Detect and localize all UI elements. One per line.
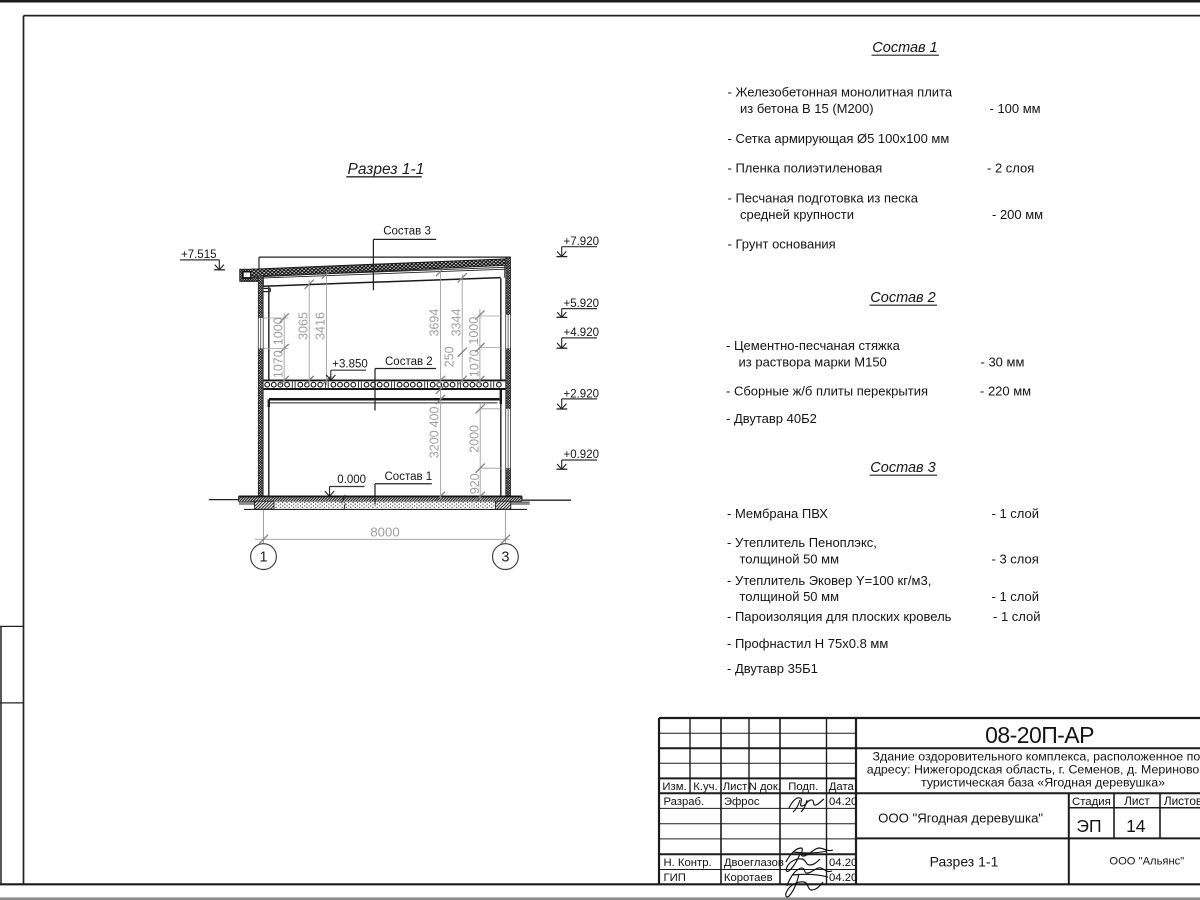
svg-text:из бетона В 15 (М200): из бетона В 15 (М200) (740, 101, 874, 116)
svg-text:ООО "Альянс": ООО "Альянс" (1109, 856, 1184, 868)
svg-text:Листов: Листов (1164, 794, 1200, 808)
svg-text:- Мембрана ПВХ: - Мембрана ПВХ (727, 506, 828, 521)
svg-text:3694: 3694 (427, 309, 441, 337)
svg-text:- Грунт основания: - Грунт основания (728, 237, 836, 252)
svg-text:Дата: Дата (829, 781, 855, 793)
svg-text:3416: 3416 (314, 312, 328, 340)
svg-text:ООО "Ягодная деревушка": ООО "Ягодная деревушка" (878, 811, 1043, 826)
svg-text:08-20П-АР: 08-20П-АР (985, 722, 1094, 748)
svg-text:N док.: N док. (749, 781, 781, 793)
svg-text:Разрез 1-1: Разрез 1-1 (930, 854, 999, 870)
svg-text:- Пленка полиэтиленовая: - Пленка полиэтиленовая (728, 161, 883, 176)
svg-text:3: 3 (501, 550, 509, 566)
svg-text:3200: 3200 (428, 430, 442, 458)
svg-text:04.20: 04.20 (829, 857, 857, 869)
svg-text:Н. Контр.: Н. Контр. (664, 857, 712, 869)
svg-text:ГИП: ГИП (664, 872, 686, 884)
svg-text:Лист: Лист (1124, 794, 1150, 808)
svg-text:3344: 3344 (449, 309, 463, 337)
svg-text:- 1 слой: - 1 слой (992, 589, 1040, 604)
svg-text:- Профнастил Н 75х0.8 мм: - Профнастил Н 75х0.8 мм (727, 636, 888, 651)
svg-text:04.20: 04.20 (829, 872, 857, 884)
svg-text:1: 1 (259, 550, 267, 566)
svg-text:Состав 2: Состав 2 (870, 290, 935, 306)
svg-text:- Сетка армирующая Ø5 100х100: - Сетка армирующая Ø5 100х100 мм (728, 131, 950, 146)
svg-text:1070: 1070 (272, 350, 286, 378)
svg-text:- Железобетонная монолитная п: - Железобетонная монолитная плита (728, 85, 953, 100)
svg-text:из раствора марки М150: из раствора марки М150 (739, 355, 887, 370)
svg-text:920: 920 (468, 473, 482, 494)
svg-text:Разраб.: Разраб. (664, 796, 705, 808)
svg-text:8000: 8000 (370, 525, 399, 540)
svg-text:- 200 мм: - 200 мм (992, 207, 1043, 222)
svg-text:2000: 2000 (468, 425, 482, 453)
svg-text:400: 400 (428, 407, 442, 428)
svg-text:Состав 1: Состав 1 (385, 471, 433, 483)
svg-text:1000: 1000 (467, 317, 481, 345)
svg-text:Состав 2: Состав 2 (385, 356, 433, 368)
svg-text:- 2 слоя: - 2 слоя (987, 161, 1034, 176)
svg-text:средней крупности: средней крупности (740, 207, 854, 222)
svg-text:- 100 мм: - 100 мм (990, 101, 1041, 116)
svg-text:- 220 мм: - 220 мм (980, 384, 1031, 399)
svg-text:Лист: Лист (723, 781, 748, 793)
svg-text:- Утеплитель Эковер Y=100 кг/м: - Утеплитель Эковер Y=100 кг/м3, (727, 573, 931, 588)
svg-text:+3.850: +3.850 (332, 358, 368, 370)
svg-text:14: 14 (1126, 816, 1146, 836)
svg-text:- Утеплитель Пеноплэкс,: - Утеплитель Пеноплэкс, (727, 535, 877, 550)
svg-text:Эфрос: Эфрос (724, 796, 760, 808)
svg-text:3065: 3065 (296, 312, 310, 340)
svg-text:толщиной 50 мм: толщиной 50 мм (740, 552, 840, 567)
svg-text:Состав 3: Состав 3 (870, 460, 935, 476)
svg-text:Двоеглазов: Двоеглазов (724, 857, 784, 869)
svg-text:Здание оздоровительного компле: Здание оздоровительного комплекса, распо… (873, 750, 1200, 764)
svg-text:Подп.: Подп. (788, 781, 818, 793)
svg-text:0.000: 0.000 (337, 474, 366, 486)
svg-text:туристическая база «Ягодная де: туристическая база «Ягодная деревушка» (921, 775, 1165, 789)
svg-text:Стадия: Стадия (1072, 796, 1111, 808)
svg-text:04.20: 04.20 (829, 796, 857, 808)
svg-text:1000: 1000 (271, 317, 285, 345)
svg-text:К.уч.: К.уч. (693, 781, 717, 793)
svg-text:- 3 слоя: - 3 слоя (992, 552, 1039, 567)
svg-text:Состав 3: Состав 3 (383, 226, 431, 238)
svg-text:- Двутавр 35Б1: - Двутавр 35Б1 (727, 661, 818, 676)
svg-text:- Цементно-песчаная стяжка: - Цементно-песчаная стяжка (726, 338, 901, 353)
svg-text:Разрез 1-1: Разрез 1-1 (348, 161, 425, 178)
svg-text:- Песчаная подготовка из песка: - Песчаная подготовка из песка (728, 191, 919, 206)
svg-text:Коротаев: Коротаев (724, 872, 773, 884)
svg-text:- Пароизоляция для плоских кро: - Пароизоляция для плоских кровель (727, 609, 952, 624)
svg-text:Изм.: Изм. (662, 781, 686, 793)
svg-text:- Сборные ж/б плиты перекрытия: - Сборные ж/б плиты перекрытия (726, 384, 928, 399)
svg-text:- Двутавр 40Б2: - Двутавр 40Б2 (726, 411, 817, 426)
svg-text:1070: 1070 (467, 349, 481, 377)
svg-text:- 1 слой: - 1 слой (993, 609, 1041, 624)
svg-text:- 30 мм: - 30 мм (981, 355, 1025, 370)
svg-text:ЭП: ЭП (1076, 816, 1101, 836)
svg-text:Состав 1: Состав 1 (872, 40, 937, 56)
svg-text:250: 250 (442, 346, 456, 367)
svg-text:толщиной 50 мм: толщиной 50 мм (740, 589, 840, 604)
svg-text:- 1 слой: - 1 слой (992, 506, 1040, 521)
